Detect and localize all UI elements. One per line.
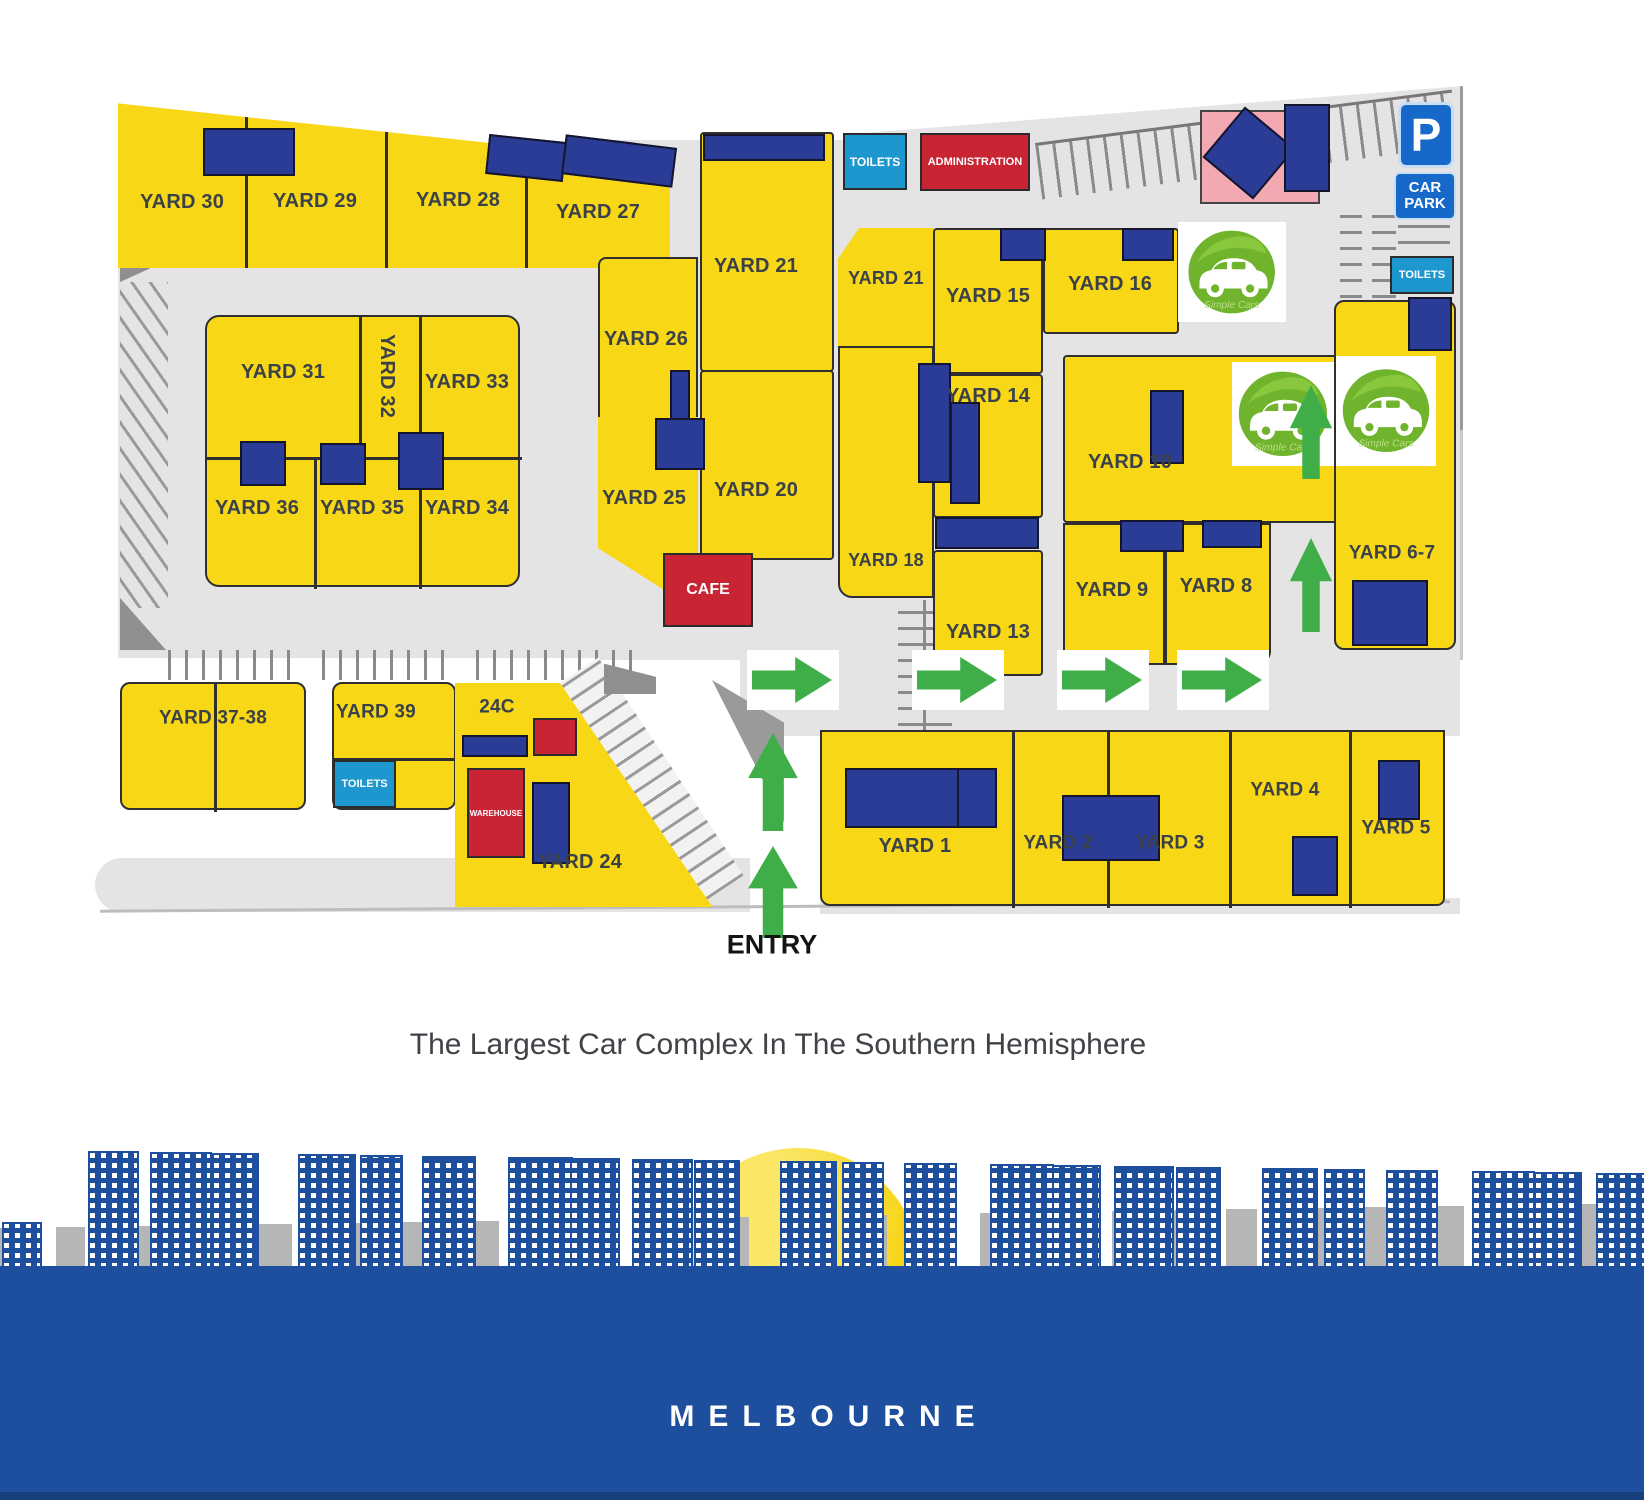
administration: ADMINISTRATION xyxy=(920,133,1030,191)
page: YARD 30 YARD 29 YARD 28 YARD 27 YARD 31 … xyxy=(0,0,1644,1500)
yard-35-label: YARD 35 xyxy=(320,498,404,518)
skyline-building-blue xyxy=(842,1162,884,1270)
yard-20 xyxy=(700,370,834,560)
svg-text:Simple Cars: Simple Cars xyxy=(1204,300,1259,311)
footer-baseline xyxy=(0,1492,1644,1500)
skyline-building-blue xyxy=(298,1154,356,1270)
yard-33-label: YARD 33 xyxy=(425,372,509,392)
skyline-building-blue xyxy=(2,1222,42,1270)
skyline-building-gray xyxy=(56,1227,85,1270)
entry-label: ENTRY xyxy=(727,930,818,961)
carpark-sign: CAR PARK xyxy=(1394,172,1456,220)
yard-2-label: YARD 2 xyxy=(1023,834,1092,853)
building xyxy=(1378,760,1420,820)
skyline-building-gray xyxy=(254,1224,292,1270)
skyline-building-blue xyxy=(1114,1166,1174,1270)
skyline-building-blue xyxy=(904,1163,957,1270)
yard-39-label: YARD 39 xyxy=(336,703,416,722)
simple-cars-logo-icon: Simple Cars xyxy=(1340,360,1432,461)
yard-16-label: YARD 16 xyxy=(1068,274,1152,294)
skyline-building-blue xyxy=(1176,1167,1221,1270)
yard-9-label: YARD 9 xyxy=(1076,580,1149,600)
building xyxy=(320,443,366,485)
skyline-building-blue xyxy=(212,1153,259,1270)
yard-37-38-label: YARD 37-38 xyxy=(159,709,267,728)
yard-15-label: YARD 15 xyxy=(946,286,1030,306)
tagline: The Largest Car Complex In The Southern … xyxy=(0,1028,1556,1062)
toilets-right: TOILETS xyxy=(1390,256,1454,294)
yard-34-label: YARD 34 xyxy=(425,498,509,518)
building xyxy=(1000,228,1046,261)
warehouse: WAREHOUSE xyxy=(467,768,525,858)
yard-25-label: YARD 25 xyxy=(602,488,686,508)
yard-28-label: YARD 28 xyxy=(416,190,500,210)
yard-8-label: YARD 8 xyxy=(1180,576,1253,596)
skyline-building-blue xyxy=(422,1156,476,1270)
skyline-building-blue xyxy=(780,1161,837,1270)
parking-hatch-left xyxy=(120,282,168,608)
yard-21-right-label: YARD 21 xyxy=(848,269,924,287)
simple-cars-logo-icon: Simple Cars xyxy=(1182,226,1281,318)
skyline-building-blue xyxy=(1472,1171,1535,1270)
yard-21-center xyxy=(700,132,834,372)
building xyxy=(485,134,567,182)
building xyxy=(203,128,295,176)
skyline-building-blue xyxy=(990,1164,1054,1270)
yard-26-label: YARD 26 xyxy=(604,329,688,349)
skyline-building-blue xyxy=(632,1159,693,1270)
parking-ticks-2 xyxy=(322,650,454,680)
building xyxy=(240,441,286,486)
yard-18-label: YARD 18 xyxy=(848,551,924,569)
yard-27-label: YARD 27 xyxy=(556,202,640,222)
yard-13-label: YARD 13 xyxy=(946,622,1030,642)
yard-31-label: YARD 31 xyxy=(241,362,325,382)
skyline-building-blue xyxy=(1262,1168,1318,1270)
building xyxy=(957,768,997,828)
skyline-building-blue xyxy=(570,1158,620,1270)
yard-20-label: YARD 20 xyxy=(714,480,798,500)
building xyxy=(845,768,959,828)
parking-hatch-carpark-2 xyxy=(1398,218,1450,260)
yard-30-label: YARD 30 xyxy=(140,192,224,212)
building xyxy=(1120,520,1184,552)
yard-36-label: YARD 36 xyxy=(215,498,299,518)
skyline-building-blue xyxy=(508,1157,573,1270)
building xyxy=(655,418,705,470)
yard-group-30-27 xyxy=(118,100,670,268)
building xyxy=(918,363,951,483)
toilets-yard39: TOILETS xyxy=(333,760,396,808)
site-map: YARD 30 YARD 29 YARD 28 YARD 27 YARD 31 … xyxy=(0,0,1644,985)
arrow-up-icon xyxy=(746,846,800,938)
skyline-building-blue xyxy=(1596,1173,1644,1270)
yard-29-label: YARD 29 xyxy=(273,191,357,211)
skyline-building-blue xyxy=(88,1151,139,1270)
yard-24c-label: 24C xyxy=(479,698,514,717)
yard-3-label: YARD 3 xyxy=(1135,834,1204,853)
building xyxy=(703,134,825,161)
carpark-p-sign: P xyxy=(1398,102,1454,168)
red-building-24c xyxy=(533,718,577,756)
skyline-water xyxy=(0,1266,1644,1500)
yard-14-label: YARD 14 xyxy=(946,386,1030,406)
building xyxy=(1202,520,1262,548)
building xyxy=(1284,104,1330,192)
svg-text:Simple Cars: Simple Cars xyxy=(1358,439,1413,450)
yard-5-label: YARD 5 xyxy=(1361,819,1430,838)
building xyxy=(1408,297,1452,351)
yard-10-label: YARD 10 xyxy=(1088,452,1172,472)
yard-37-38 xyxy=(120,682,306,810)
building xyxy=(1352,580,1428,646)
yard-24-label: YARD 24 xyxy=(538,852,622,872)
city-name: MELBOURNE xyxy=(0,1400,1644,1434)
cafe: CAFE xyxy=(663,553,753,627)
skyline-building-blue xyxy=(694,1160,740,1270)
simple-cars-logo-box: Simple Cars xyxy=(1336,356,1436,466)
skyline-building-blue xyxy=(1386,1170,1438,1270)
skyline-building-gray xyxy=(1226,1209,1257,1270)
parking-ticks-1 xyxy=(168,650,302,680)
skyline-building-blue xyxy=(1324,1169,1365,1270)
skyline-building-blue xyxy=(360,1155,403,1270)
building xyxy=(462,735,528,757)
building xyxy=(935,517,1039,549)
yard-21-center-label: YARD 21 xyxy=(714,256,798,276)
building xyxy=(398,432,444,490)
city-skyline xyxy=(0,1118,1644,1270)
toilets-top: TOILETS xyxy=(843,133,907,190)
skyline-building-blue xyxy=(150,1152,212,1270)
yard-6-7-label: YARD 6-7 xyxy=(1349,544,1435,563)
skyline-building-blue xyxy=(1052,1165,1101,1270)
yard-1-label: YARD 1 xyxy=(879,836,952,856)
building xyxy=(950,402,980,504)
yard-4-label: YARD 4 xyxy=(1250,781,1319,800)
building xyxy=(1292,836,1338,896)
simple-cars-logo-box: Simple Cars xyxy=(1178,222,1286,322)
skyline-building-blue xyxy=(1534,1172,1582,1270)
yard-32-label: YARD 32 xyxy=(377,334,397,418)
building xyxy=(1122,228,1174,261)
